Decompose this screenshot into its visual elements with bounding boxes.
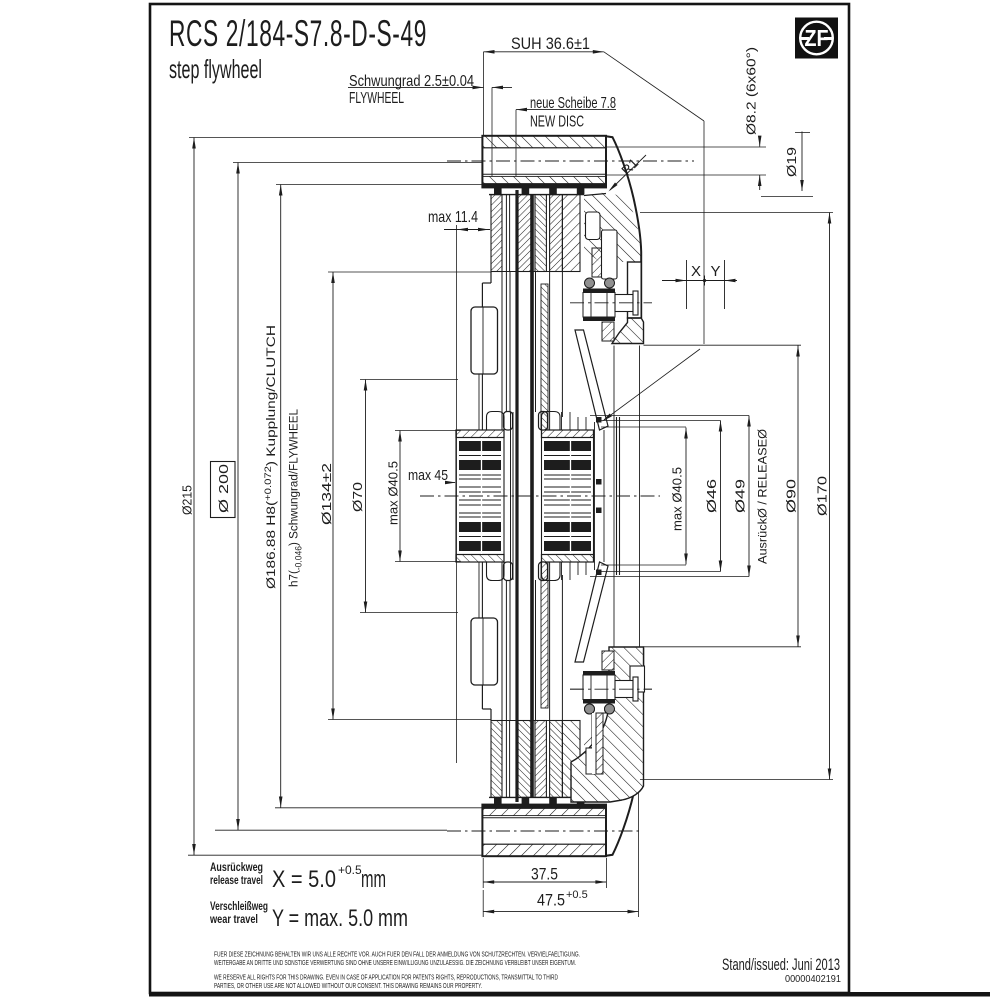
svg-text:Ø46: Ø46 bbox=[705, 479, 719, 513]
svg-text:X = 5.0: X = 5.0 bbox=[272, 866, 336, 893]
svg-text:AusrückØ / RELEASEØ: AusrückØ / RELEASEØ bbox=[758, 429, 770, 564]
svg-text:RCS 2/184-S7.8-D-S-49: RCS 2/184-S7.8-D-S-49 bbox=[169, 13, 427, 54]
svg-text:NEW DISC: NEW DISC bbox=[530, 114, 584, 131]
svg-text:wear travel: wear travel bbox=[209, 914, 258, 926]
svg-text:Y = max. 5.0 mm: Y = max. 5.0 mm bbox=[272, 905, 408, 932]
svg-text:Ø 200: Ø 200 bbox=[216, 464, 231, 513]
svg-text:max 11.4: max 11.4 bbox=[428, 209, 478, 226]
svg-text:Ø70: Ø70 bbox=[351, 482, 365, 512]
svg-text:max 45: max 45 bbox=[408, 467, 448, 484]
svg-text:00000402191: 00000402191 bbox=[785, 974, 841, 985]
svg-text:FLYWHEEL: FLYWHEEL bbox=[349, 90, 404, 107]
svg-text:WEITERGABE AN DRITTE UND SONST: WEITERGABE AN DRITTE UND SONSTIGE VERWER… bbox=[214, 958, 576, 967]
svg-text:SUH 36.6±1: SUH 36.6±1 bbox=[511, 34, 590, 53]
svg-text:max Ø40.5: max Ø40.5 bbox=[387, 461, 401, 525]
svg-text:Ø170: Ø170 bbox=[816, 476, 830, 516]
svg-text:max Ø40.5: max Ø40.5 bbox=[671, 467, 685, 531]
svg-text:+0.5: +0.5 bbox=[566, 889, 588, 901]
svg-text:Ø215: Ø215 bbox=[181, 485, 195, 515]
svg-text:Ø90: Ø90 bbox=[785, 479, 799, 513]
svg-text:Ø19: Ø19 bbox=[785, 147, 799, 177]
svg-text:Verschleißweg: Verschleißweg bbox=[210, 901, 268, 913]
svg-text:Y: Y bbox=[711, 263, 721, 280]
svg-text:X: X bbox=[691, 263, 701, 280]
svg-text:mm: mm bbox=[361, 866, 386, 893]
svg-text:47.5: 47.5 bbox=[537, 891, 565, 910]
svg-text:release travel: release travel bbox=[210, 875, 263, 887]
svg-text:Stand/issued: Juni 2013: Stand/issued: Juni 2013 bbox=[722, 955, 840, 974]
svg-text:+0.5: +0.5 bbox=[338, 863, 362, 877]
svg-text:Ø186.88 H8(+0.072) Kupplung/CL: Ø186.88 H8(+0.072) Kupplung/CLUTCH bbox=[263, 325, 278, 589]
svg-text:step flywheel: step flywheel bbox=[169, 54, 262, 84]
svg-text:Ø49: Ø49 bbox=[734, 479, 748, 513]
svg-text:PARTIES, OR OTHER USE ARE NOT: PARTIES, OR OTHER USE ARE NOT ALLOWED WI… bbox=[214, 981, 482, 990]
svg-text:Ø8.2 (6x60°): Ø8.2 (6x60°) bbox=[745, 47, 759, 135]
svg-text:Ø134±2: Ø134±2 bbox=[320, 463, 334, 525]
svg-text:Ausrückweg: Ausrückweg bbox=[210, 862, 263, 874]
svg-text:37.5: 37.5 bbox=[531, 865, 558, 884]
